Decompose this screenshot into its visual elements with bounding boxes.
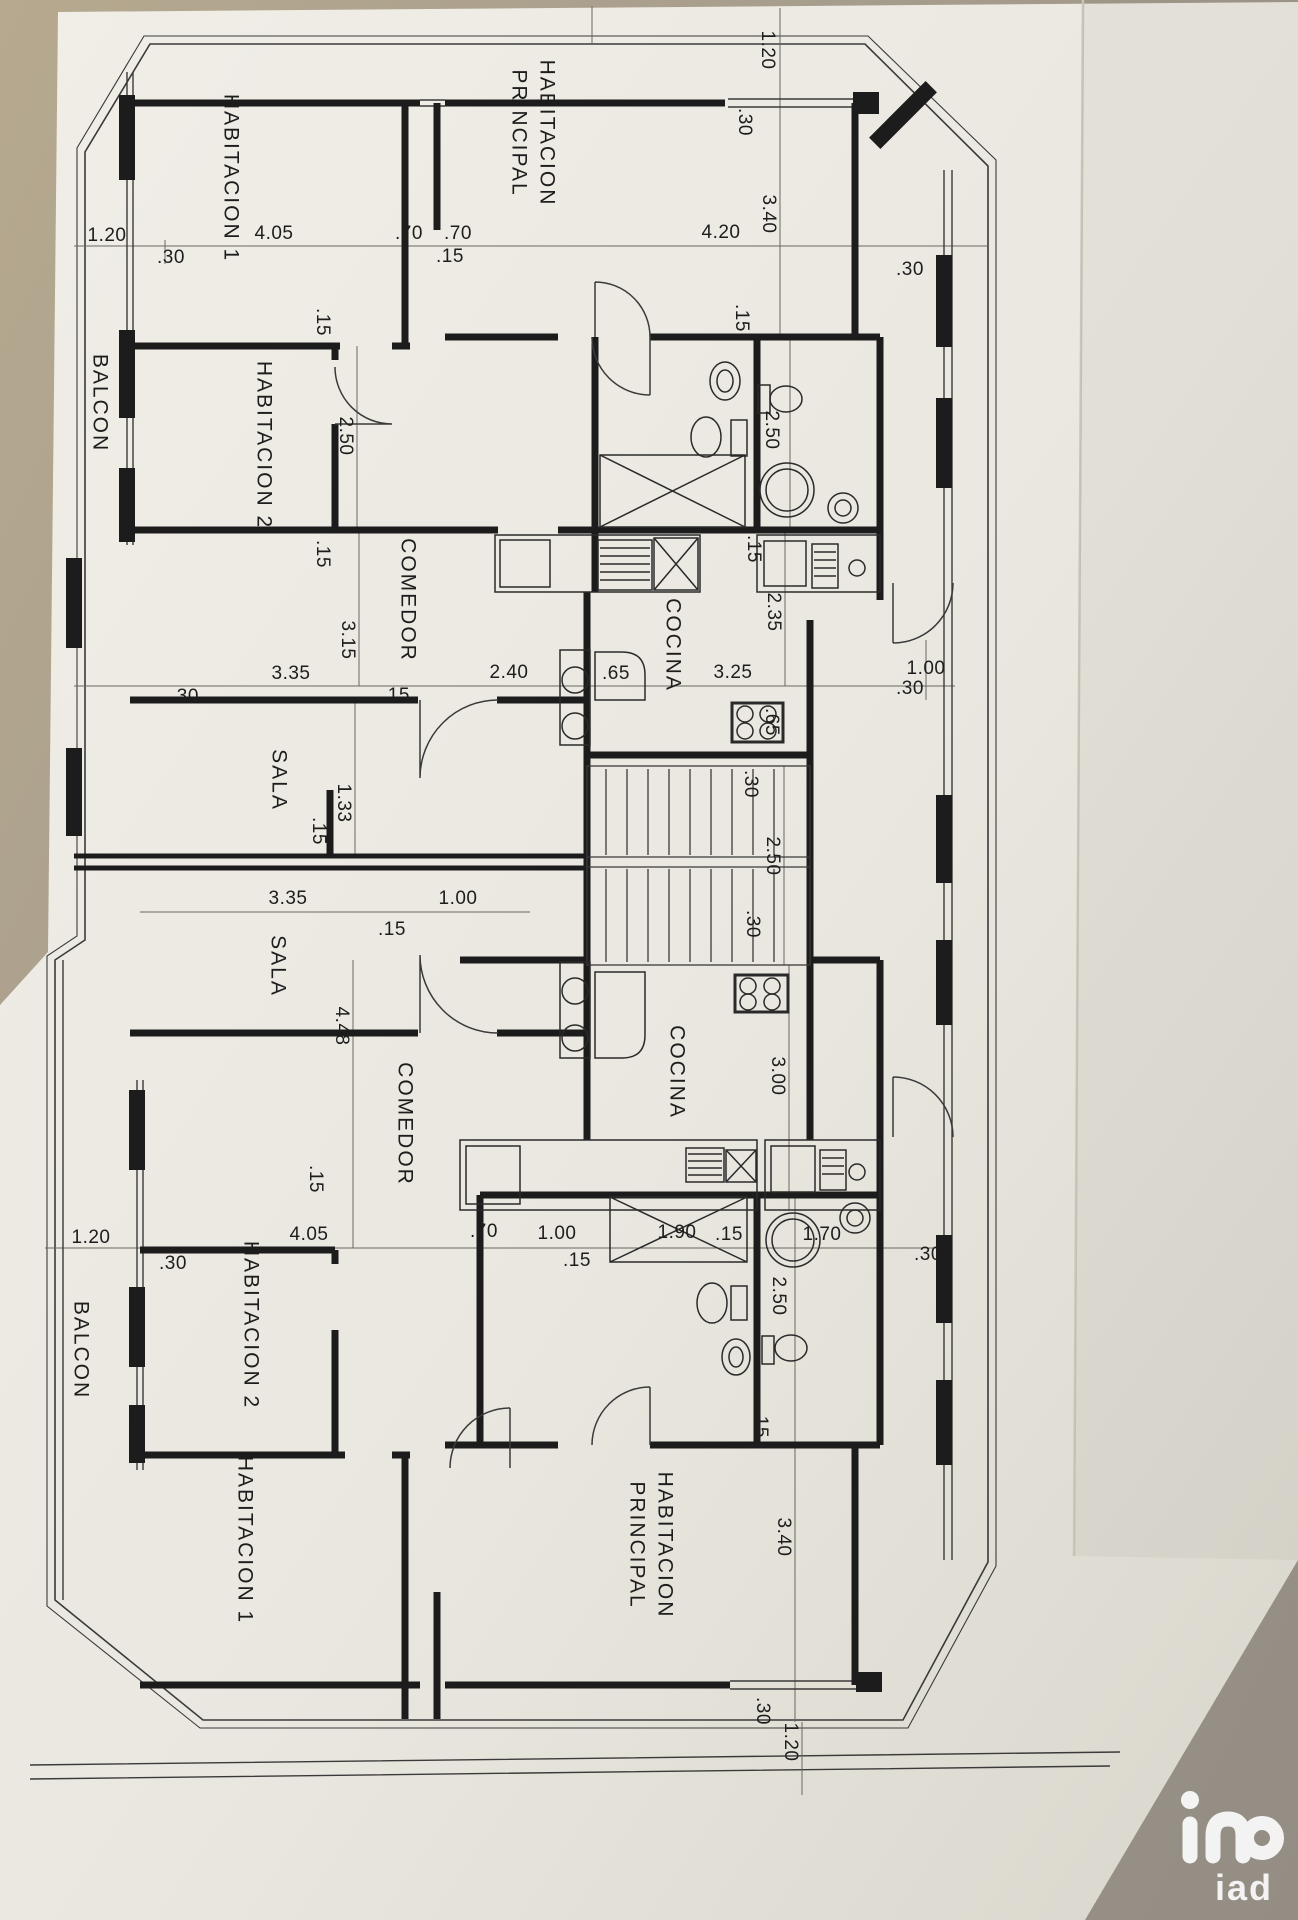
dim-label: .15 — [436, 246, 464, 267]
dim-label: .30 — [742, 910, 763, 938]
dim-label: .65 — [761, 708, 782, 736]
dim-label: .30 — [734, 108, 755, 136]
dim-label: .70 — [395, 223, 423, 244]
dim-label: 2.50 — [335, 417, 356, 456]
dim-label: 2.40 — [490, 662, 529, 683]
dim-label: 4.05 — [255, 223, 294, 244]
room-label: COMEDOR — [396, 538, 419, 662]
dim-label: 1.33 — [333, 784, 354, 823]
dim-label: 1.20 — [88, 225, 127, 246]
dim-label: 1.90 — [658, 1222, 697, 1243]
room-label: PRINCIPAL — [625, 1481, 648, 1608]
dim-label: .30 — [157, 247, 185, 268]
room-label: HABITACION — [535, 60, 558, 207]
room-label: BALCON — [69, 1301, 92, 1399]
photo-of-floor-plan: { "scene": { "table_color": "#a89e8d", "… — [0, 0, 1298, 1920]
dim-label: .15 — [305, 1165, 326, 1193]
dim-label: .15 — [308, 817, 329, 845]
dim-label: 2.50 — [762, 837, 783, 876]
dim-label: 2.50 — [761, 411, 782, 450]
room-label: HABITACION 1 — [233, 1456, 256, 1624]
dim-label: 3.40 — [758, 195, 779, 234]
dim-label: .30 — [171, 686, 199, 707]
dim-label: 1.20 — [757, 31, 778, 70]
room-label: HABITACION 2 — [252, 361, 275, 529]
dim-label: .65 — [602, 663, 630, 684]
iad-watermark: iad — [1181, 1791, 1277, 1908]
floor-plan-svg: HABITACION 1PRINCIPALHABITACIONHABITACIO… — [0, 0, 1298, 1920]
room-label: SALA — [266, 935, 289, 997]
dim-label: 3.35 — [269, 888, 308, 909]
room-label: COCINA — [661, 598, 684, 692]
dim-label: 3.35 — [272, 663, 311, 684]
dim-label: .15 — [715, 1224, 743, 1245]
room-label: COMEDOR — [393, 1062, 416, 1186]
room-label: HABITACION 2 — [239, 1241, 262, 1409]
dim-label: .30 — [740, 770, 761, 798]
dim-label: 1.70 — [803, 1224, 842, 1245]
iad-logo-text: iad — [1215, 1867, 1273, 1908]
iad-logo-o — [1247, 1823, 1277, 1853]
dim-label: 3.15 — [337, 621, 358, 660]
iad-logo-glyph — [1190, 1819, 1243, 1856]
dim-label: .70 — [470, 1221, 498, 1242]
dim-label: .15 — [312, 540, 333, 568]
dim-label: .15 — [563, 1250, 591, 1271]
dim-label: 1.00 — [538, 1223, 577, 1244]
dim-label: 2.35 — [763, 593, 784, 632]
dim-label: .15 — [731, 304, 752, 332]
paper-fold-shade — [1074, 0, 1298, 1560]
dim-label: 1.00 — [907, 658, 946, 679]
dim-label: .15 — [743, 535, 764, 563]
dim-label: 4.20 — [702, 222, 741, 243]
dim-label: .30 — [896, 678, 924, 699]
dim-label: .15 — [378, 919, 406, 940]
room-label: HABITACION 1 — [219, 94, 242, 262]
room-label: SALA — [267, 749, 290, 811]
dim-label: 3.25 — [714, 662, 753, 683]
room-label: COCINA — [665, 1025, 688, 1119]
dim-label: 1.00 — [439, 888, 478, 909]
dim-label: 1.20 — [72, 1227, 111, 1248]
room-label: BALCON — [88, 354, 111, 452]
dim-label: 4.05 — [290, 1224, 329, 1245]
room-label: HABITACION — [653, 1472, 676, 1619]
dim-label: .30 — [159, 1253, 187, 1274]
dim-label: .30 — [752, 1697, 773, 1725]
room-label: PRINCIPAL — [507, 69, 530, 196]
dim-label: .15 — [382, 685, 410, 706]
dim-label: .30 — [914, 1244, 942, 1265]
dim-label: 3.00 — [767, 1057, 788, 1096]
dim-label: .15 — [312, 308, 333, 336]
dim-label: 2.50 — [768, 1277, 789, 1316]
iad-logo-i-dot — [1181, 1791, 1199, 1809]
dim-label: .15 — [750, 1410, 771, 1438]
dim-label: 4.48 — [331, 1007, 352, 1046]
dim-label: 1.20 — [780, 1723, 801, 1762]
dim-label: .30 — [896, 259, 924, 280]
dim-label: .70 — [444, 223, 472, 244]
dim-label: 3.40 — [773, 1518, 794, 1557]
